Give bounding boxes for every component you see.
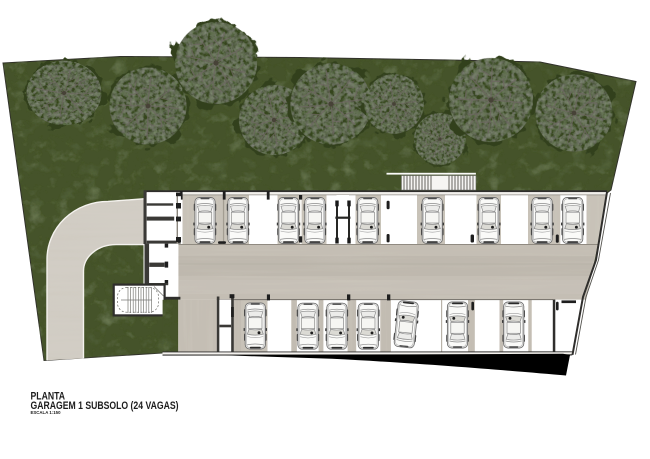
svg-text:ESCALA 1:150: ESCALA 1:150 (31, 410, 61, 416)
svg-text:GARAGEM 1 SUBSOLO (24 VAGAS): GARAGEM 1 SUBSOLO (24 VAGAS) (31, 400, 179, 412)
